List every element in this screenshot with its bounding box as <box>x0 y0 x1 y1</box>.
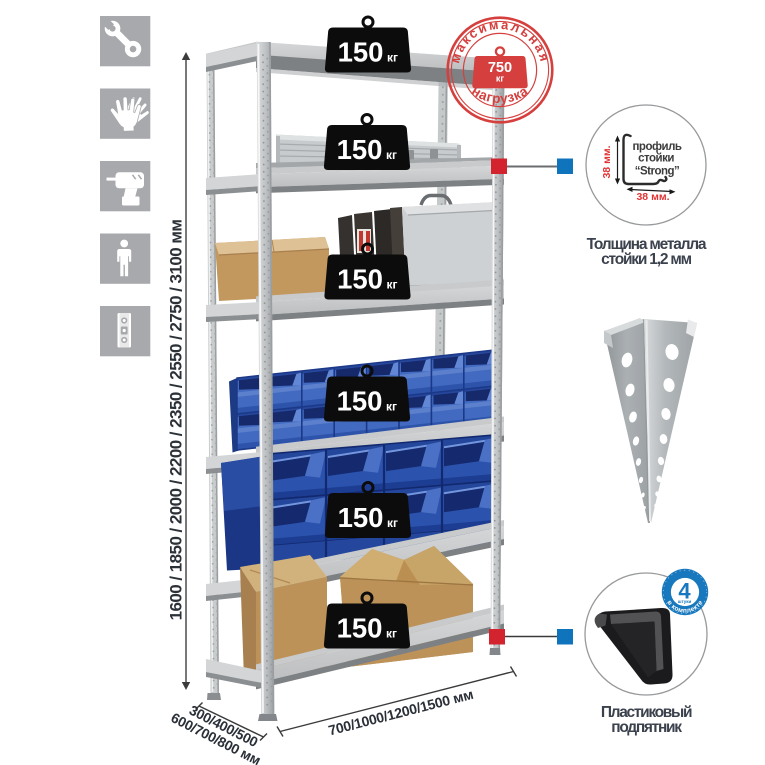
svg-text:штуки: штуки <box>678 599 692 604</box>
svg-text:38 мм.: 38 мм. <box>636 191 669 203</box>
svg-text:кг: кг <box>496 74 505 84</box>
svg-text:стойки: стойки <box>638 153 674 165</box>
svg-text:стойки 1,2 мм: стойки 1,2 мм <box>601 251 692 268</box>
svg-text:подпятник: подпятник <box>611 719 682 736</box>
svg-text:“Strong”: “Strong” <box>635 166 680 178</box>
svg-text:38 мм.: 38 мм. <box>601 145 613 178</box>
svg-text:1600 / 1850 / 2000 / 2200 / 23: 1600 / 1850 / 2000 / 2200 / 2350 / 2550 … <box>167 220 186 621</box>
svg-text:профиль: профиль <box>632 141 681 153</box>
